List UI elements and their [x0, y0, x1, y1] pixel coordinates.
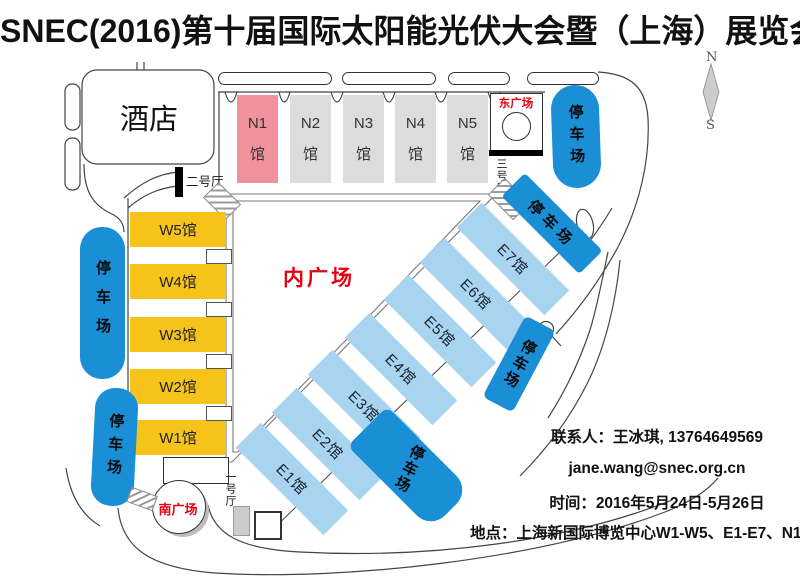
contact-person-line: 联系人：王冰琪, 13764649569	[492, 425, 800, 447]
parking-label: 停车场	[92, 260, 113, 347]
hall-w4-label: W4馆	[159, 271, 197, 292]
page-title: SNEC(2016)第十届国际太阳能光伏大会暨（上海）展览会展馆布置图	[0, 6, 800, 52]
hall-w4: W4馆	[130, 264, 226, 299]
hall-n3-code: N3	[354, 108, 373, 140]
hall-n1-suffix: 馆	[250, 139, 265, 171]
inner-plaza-label: 内广场	[283, 262, 355, 292]
hall-n5-code: N5	[458, 108, 477, 140]
hall-w5-label: W5馆	[159, 219, 197, 240]
hall-e6-label: E6馆	[456, 274, 497, 315]
hall-n2: N2 馆	[290, 95, 331, 183]
hall-n2-suffix: 馆	[303, 139, 318, 171]
hall-w1: W1馆	[130, 420, 226, 455]
hall3-gate-bar	[489, 150, 543, 156]
hall-connector	[206, 302, 232, 317]
hall-connector	[206, 354, 232, 369]
compass-needle-icon	[703, 64, 719, 120]
hall-e4-label: E4馆	[381, 349, 422, 390]
hall-w3: W3馆	[130, 317, 226, 352]
road-segment	[342, 72, 436, 85]
hall-n5-suffix: 馆	[460, 139, 475, 171]
hall-n3: N3 馆	[343, 95, 384, 183]
hall-e7-label: E7馆	[493, 239, 534, 280]
hall-n4-suffix: 馆	[408, 139, 423, 171]
contact-email: jane.wang@snec.org.cn	[492, 460, 800, 478]
road-segment	[218, 72, 332, 85]
parking-label: 停车场	[389, 440, 430, 495]
south-structure-gray	[233, 506, 250, 536]
hall-n4-code: N4	[406, 108, 425, 140]
hall-w5: W5馆	[130, 212, 226, 247]
road-segment	[448, 72, 510, 85]
compass-south-label: S	[706, 118, 715, 133]
hall-n2-code: N2	[301, 108, 320, 140]
road-segment	[527, 72, 599, 85]
hotel-label: 酒店	[92, 96, 206, 138]
hall-w1-label: W1馆	[159, 427, 197, 448]
south-structure-gate	[254, 511, 282, 540]
gangway-hatch-south	[126, 487, 158, 512]
hall-e1-label: E1馆	[272, 459, 313, 500]
hall-connector	[206, 406, 232, 421]
hall-n4: N4 馆	[395, 95, 436, 183]
hall-n3-suffix: 馆	[356, 139, 371, 171]
east-plaza-roundabout	[502, 112, 531, 141]
south-plaza-label: 南广场	[150, 499, 206, 518]
hall-e5-label: E5馆	[420, 311, 461, 352]
parking-label: 停车场	[523, 195, 580, 252]
parking-label: 停车场	[102, 412, 127, 482]
hall-w2-label: W2馆	[159, 376, 197, 397]
hall-connector	[206, 249, 232, 264]
event-venue-line: 地点：上海新国际博览中心W1-W5、E1-E7、N1馆	[470, 521, 800, 543]
hall2-gate-bar	[175, 167, 183, 197]
parking-label: 停车场	[564, 103, 587, 170]
hall-w2: W2馆	[130, 369, 226, 404]
floorplan-map: SNEC(2016)第十届国际太阳能光伏大会暨（上海）展览会展馆布置图 N S …	[0, 0, 800, 579]
hall-n5: N5 馆	[447, 95, 488, 183]
hall-n1-code: N1	[248, 108, 267, 140]
hall-w3-label: W3馆	[159, 324, 197, 345]
hall-e2-label: E2馆	[308, 424, 349, 465]
hall1-label: 一号厅	[222, 471, 238, 507]
compass-north-label: N	[706, 50, 717, 65]
parking-area-northeast: 停车场	[550, 84, 602, 189]
east-plaza-label: 东广场	[492, 95, 540, 111]
parking-area-west-upper: 停车场	[80, 227, 125, 379]
event-date-line: 时间：2016年5月24日-5月26日	[492, 491, 800, 513]
hall-n1: N1 馆	[237, 95, 278, 183]
